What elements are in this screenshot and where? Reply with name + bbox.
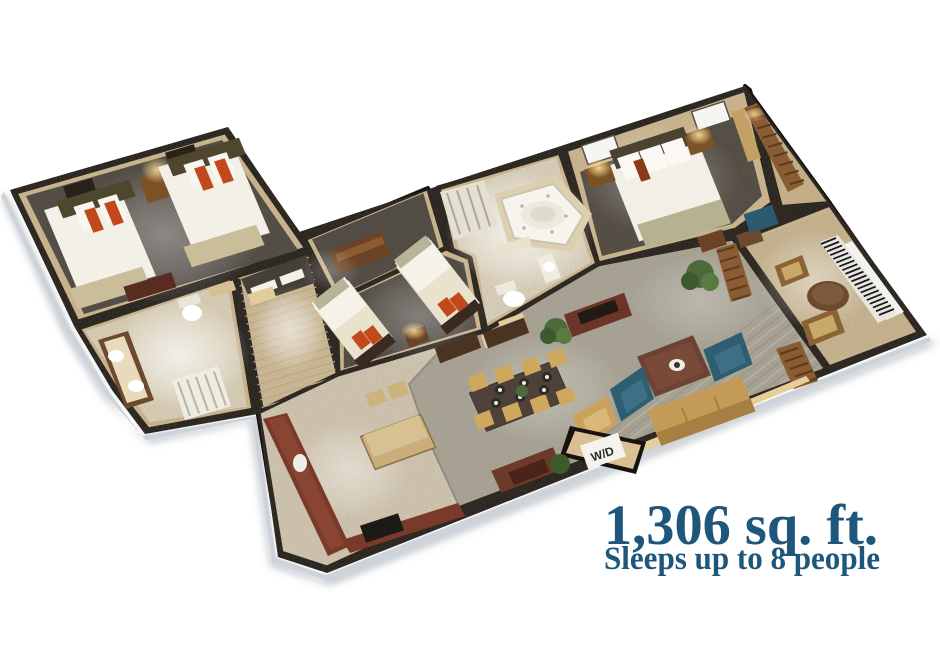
svg-text:Sleeps up to 8 people: Sleeps up to 8 people [604, 541, 880, 577]
